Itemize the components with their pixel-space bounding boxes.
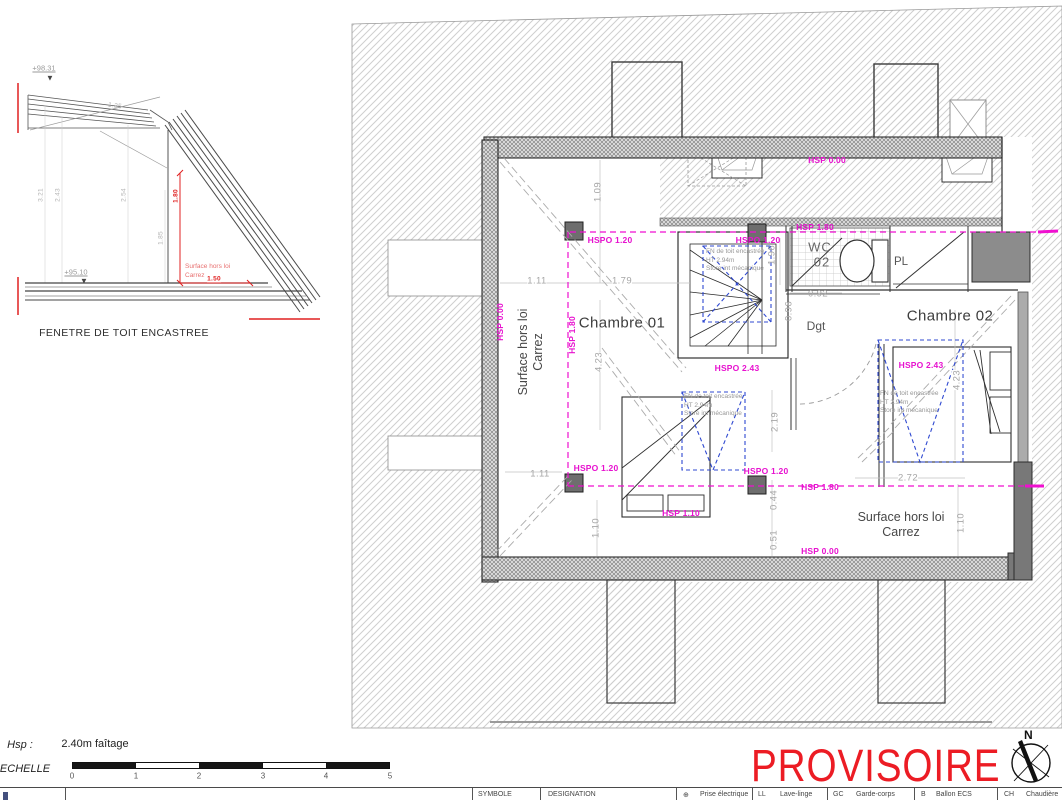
height-label: HSP 0.00 [801, 546, 839, 556]
scale-bar [72, 762, 390, 769]
echelle-label: ECHELLE [0, 763, 50, 775]
elevation-marker-icon: ▼ [80, 277, 88, 286]
legend-item-label: Garde-corps [856, 791, 895, 798]
carrez-note-left: Surface hors loiCarrez [516, 309, 546, 396]
dim-label: 4.23 [594, 352, 605, 372]
legend-col-designation: DESIGNATION [548, 791, 596, 798]
dim-label: 1.11 [530, 469, 549, 480]
dim-label: 0.96 [784, 301, 795, 321]
legend-symbol-prise-icon: ⊕ [683, 791, 689, 799]
hsp-label: Hsp : [7, 739, 33, 751]
legend-symbol: LL [758, 791, 766, 798]
section-carrez-note: Surface hors loi Carrez [185, 263, 230, 280]
height-label: HSP 1.10 [662, 508, 700, 518]
height-label: HSPO 1.20 [744, 466, 789, 476]
drawing-sheet: +98.31 ▼ +95.10 ▼ 1.25 3.21 2.43 2.54 1.… [0, 0, 1062, 800]
dim-label: 0.51 [769, 530, 780, 550]
skylight-note-stair: FN de toit encastréeHT 2.94mStore int mé… [706, 248, 765, 274]
legend-symbol: B [921, 791, 926, 798]
dim-label: 2.19 [770, 412, 781, 432]
height-label: HSP 1.80 [567, 316, 577, 354]
height-label: HSP 1.80 [796, 222, 834, 232]
legend-table-border [0, 787, 1062, 788]
height-label: HSPO 2.43 [899, 360, 944, 370]
dim-label: 1.79 [612, 276, 632, 287]
carrez-note-right: Surface hors loiCarrez [858, 510, 945, 540]
height-label: HSP 0.00 [495, 303, 505, 341]
legend-symbol: CH [1004, 791, 1014, 798]
height-label: HSPO 2.43 [715, 363, 760, 373]
legend-col-symbol: SYMBOLE [478, 791, 512, 798]
elevation-marker-icon: ▼ [46, 74, 54, 83]
dim-label: 1.09 [593, 182, 604, 202]
scale-tick: 1 [134, 772, 138, 781]
legend-item-label: Chaudière [1026, 791, 1058, 798]
section-dim: 2.43 [55, 188, 62, 202]
dim-label: 0.44 [769, 490, 780, 510]
room-label-chambre01: Chambre 01 [579, 315, 666, 332]
room-label-pl: PL [894, 256, 908, 268]
dim-label: 4.23 [952, 370, 963, 390]
section-drawing-linework [18, 83, 320, 319]
sheet-corner-mark [3, 792, 8, 800]
room-label-wc: WC [808, 240, 832, 255]
height-label: HSPO 1.20 [588, 235, 633, 245]
height-label: HSP 1.80 [801, 482, 839, 492]
scale-tick: 5 [388, 772, 392, 781]
section-dim: 1.85 [158, 231, 165, 245]
section-slope-dim: 1.25 [108, 102, 123, 111]
height-label: HSP 0.00 [808, 155, 846, 165]
scale-tick: 0 [70, 772, 74, 781]
north-label: N [1024, 728, 1033, 742]
room-label-wc-number: 02 [814, 255, 830, 270]
skylight-note-chambre02: FN de toit encastréeHT 2.94mStore int mé… [880, 390, 939, 416]
hsp-value: 2.40m faîtage [61, 738, 128, 750]
height-label: HSPO 1.20 [736, 235, 781, 245]
dim-label: 2.72 [898, 473, 918, 484]
room-label-chambre02: Chambre 02 [907, 308, 994, 325]
section-dim: 2.54 [121, 188, 128, 202]
legend-symbol: GC [833, 791, 844, 798]
elevation-top-label: +98.31 [32, 64, 55, 73]
dim-label: 1.11 [527, 276, 546, 287]
elevation-floor-label: +95.10 [64, 268, 87, 277]
dim-label: 1.96 [767, 245, 778, 265]
dim-label: 1.10 [591, 518, 602, 538]
legend-item-label: Ballon ECS [936, 791, 972, 798]
dim-label: 1.10 [956, 513, 967, 533]
north-compass-icon [1012, 740, 1050, 782]
provisoire-stamp: PROVISOIRE [751, 740, 1000, 792]
section-caption: FENETRE DE TOIT ENCASTREE [39, 327, 209, 339]
skylight-note-chambre01: FN de toit encastréeHT 2.94mStore int mé… [684, 393, 743, 419]
scale-tick: 2 [197, 772, 201, 781]
scale-tick: 3 [261, 772, 265, 781]
dim-label: 0.92 [808, 289, 828, 300]
section-dim: 3.21 [38, 188, 45, 202]
legend-item-label: Prise électrique [700, 791, 748, 798]
room-label-dgt: Dgt [807, 319, 826, 333]
section-red-height-dim: 1.80 [173, 189, 180, 203]
height-label: HSPO 1.20 [574, 463, 619, 473]
legend-item-label: Lave-linge [780, 791, 812, 798]
scale-tick: 4 [324, 772, 328, 781]
